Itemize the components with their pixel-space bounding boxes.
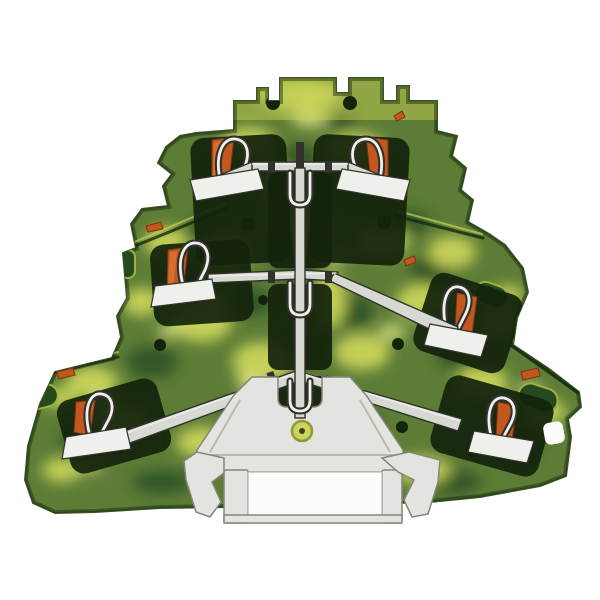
texture-blob [132, 470, 192, 494]
din-rail-window [248, 472, 382, 516]
product-photo [0, 0, 600, 600]
hole [396, 421, 408, 433]
terminal-block-illustration [0, 0, 600, 600]
hole [392, 338, 404, 350]
texture-blob [378, 324, 406, 340]
bar-clip [325, 162, 332, 173]
bar-clip [325, 272, 332, 283]
texture-blob [334, 334, 390, 370]
texture-blob [126, 346, 178, 378]
hole [343, 96, 357, 110]
marker-point-center [299, 428, 305, 434]
center-pin [296, 142, 304, 168]
rail-channel-bottom [224, 515, 402, 523]
bar-clip [268, 272, 275, 283]
bar-clip [268, 162, 275, 173]
hole [258, 295, 268, 305]
hole [154, 339, 166, 351]
texture-blob [428, 236, 476, 268]
hole [377, 215, 391, 229]
hole [241, 217, 255, 231]
